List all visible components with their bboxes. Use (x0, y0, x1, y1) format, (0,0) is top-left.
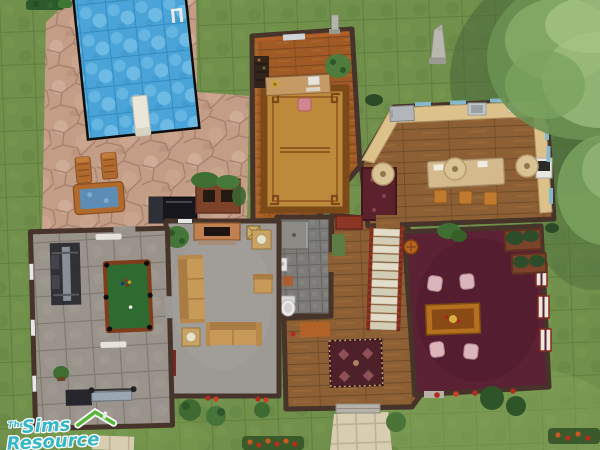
wall-medallion[interactable] (404, 240, 418, 254)
living-window (178, 219, 192, 223)
watermark-logo: The Sims Resource (5, 411, 115, 450)
desk[interactable] (266, 74, 331, 95)
ceiling-light (95, 233, 121, 240)
sofa-horizontal[interactable] (206, 322, 262, 346)
dining-chairs[interactable] (434, 190, 497, 205)
swimming-pool[interactable] (73, 0, 199, 141)
bathroom (277, 217, 336, 316)
hall-red-rug[interactable] (336, 216, 362, 229)
refrigerator[interactable] (390, 105, 415, 121)
armchair[interactable] (253, 274, 273, 293)
computer[interactable] (306, 76, 321, 92)
gym-living-doorway (165, 296, 173, 318)
fireplace[interactable] (194, 223, 240, 245)
gym-patio-doorway (113, 226, 135, 234)
deck-rug[interactable] (329, 339, 383, 387)
sofa-vertical[interactable] (178, 255, 205, 324)
end-table-lamp-1[interactable] (252, 230, 271, 249)
game-room-step (424, 391, 444, 398)
brick-planter[interactable] (191, 172, 246, 213)
toilet[interactable] (281, 296, 295, 316)
end-table-lamp-2[interactable] (182, 328, 200, 346)
study-plant[interactable] (325, 54, 351, 78)
staircase[interactable] (366, 224, 404, 331)
ceiling-light (100, 341, 126, 348)
garden-path-bottom-center (330, 412, 392, 450)
weight-machine[interactable] (50, 243, 82, 306)
shower[interactable] (281, 221, 307, 249)
gym-room (28, 225, 175, 429)
card-table[interactable] (425, 303, 480, 335)
game-viewport[interactable]: The Sims Resource (0, 0, 600, 450)
hall-orange-rug[interactable] (300, 321, 331, 337)
kitchen-sink[interactable] (468, 103, 486, 115)
entry-steps[interactable] (336, 404, 380, 413)
study-room (252, 29, 360, 221)
wall-shelf[interactable] (283, 33, 305, 40)
bath-mat[interactable] (283, 276, 293, 286)
billiards-table[interactable] (102, 259, 154, 333)
living-room (165, 219, 296, 403)
office-chair[interactable] (298, 98, 311, 111)
watermark-resource: Resource (6, 429, 100, 450)
hall-green-mat[interactable] (332, 234, 345, 256)
hot-tub[interactable] (73, 181, 125, 214)
